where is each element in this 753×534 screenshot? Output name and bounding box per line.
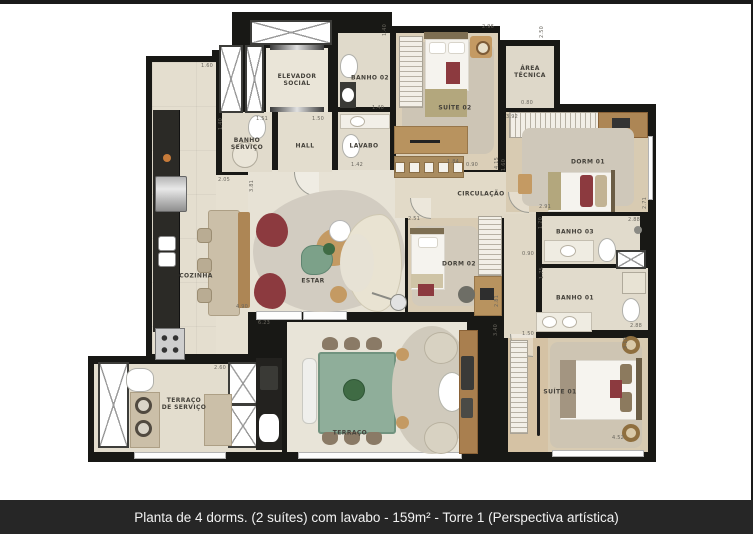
dimension-label: 2.88 [630, 323, 642, 329]
dimension-label: 1.40 [382, 24, 388, 36]
dimension-label: 3.40 [493, 324, 499, 336]
dimension-label: 4.52 [612, 435, 624, 441]
dimension-label: 3.10 [623, 337, 629, 349]
floor-plan: ELEVADOR SOCIALBANHO SERVIÇOHALLLAVABOBA… [0, 0, 753, 500]
dimension-label: 2.81 [494, 295, 500, 307]
dimension-label: 2.71 [642, 197, 648, 209]
dimension-label: 2.50 [539, 26, 545, 38]
dimension-label: 1.51 [256, 116, 268, 122]
dimension-label: 0.90 [522, 251, 534, 257]
caption-bar: Planta de 4 dorms. (2 suítes) com lavabo… [0, 500, 753, 534]
dimension-label: 0.90 [466, 162, 478, 168]
dimension-label: 1.84 [447, 159, 459, 165]
dimension-label: 3.92 [506, 114, 518, 120]
dimension-label: 1.40 [372, 105, 384, 111]
dimension-label: 1.50 [522, 331, 534, 337]
dimension-label: 0.80 [521, 100, 533, 106]
dimension-label: 1.42 [351, 162, 363, 168]
dimension-labels-layer: 1.602.051.511.401.501.401.401.422.962.50… [0, 0, 753, 500]
dimension-label: 1.40 [218, 118, 224, 130]
dimension-label: 2.60 [214, 365, 226, 371]
dimension-label: 2.51 [408, 216, 420, 222]
dimension-label: 1.60 [501, 159, 507, 171]
dimension-label: 2.91 [539, 204, 551, 210]
dimension-label: 1.75 [539, 267, 545, 279]
dimension-label: 4.90 [236, 304, 248, 310]
dimension-label: 1.60 [201, 63, 213, 69]
dimension-label: 2.96 [482, 24, 494, 30]
dimension-label: 4.15 [494, 157, 500, 169]
dimension-label: 6.23 [258, 320, 270, 326]
dimension-label: 2.88 [628, 217, 640, 223]
screenshot-root: ELEVADOR SOCIALBANHO SERVIÇOHALLLAVABOBA… [0, 0, 753, 534]
caption-text: Planta de 4 dorms. (2 suítes) com lavabo… [134, 510, 618, 525]
dimension-label: 1.50 [312, 116, 324, 122]
dimension-label: 2.05 [218, 177, 230, 183]
dimension-label: 1.20 [538, 217, 544, 229]
dimension-label: 3.81 [249, 180, 255, 192]
